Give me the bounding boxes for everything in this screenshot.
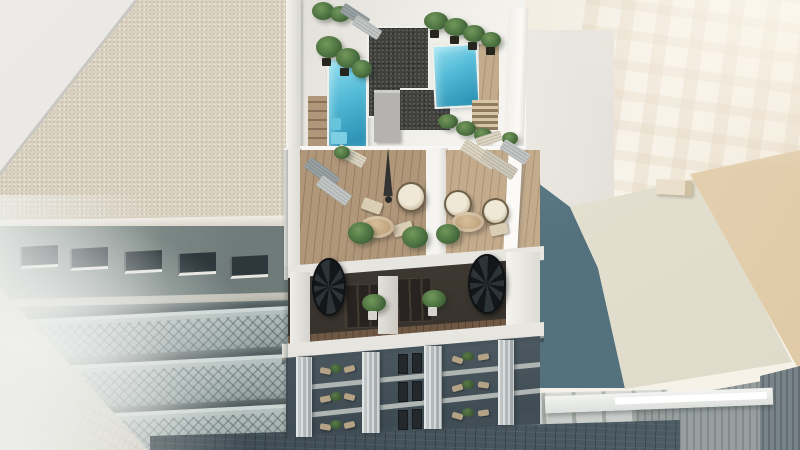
- sun-lounger: [475, 130, 503, 148]
- left-roof-edge: [0, 0, 141, 176]
- rooftop-pool-right: [431, 43, 480, 109]
- facade-pier: [362, 352, 380, 433]
- terrace-chair: [489, 222, 509, 237]
- sun-lounger: [499, 139, 531, 165]
- hanging-chair: [396, 182, 426, 212]
- sun-lounger: [351, 15, 382, 41]
- plant: [462, 380, 474, 389]
- terrace-chair: [361, 197, 384, 215]
- balcony-furniture: [343, 421, 355, 429]
- terrace-door: [343, 283, 381, 328]
- dark-window: [412, 353, 422, 373]
- plant-pot: [322, 58, 331, 66]
- sun-lounger: [460, 139, 499, 171]
- balcony-row: [0, 0, 800, 450]
- dark-window: [412, 381, 422, 401]
- rooftop-pool-left: [327, 58, 368, 148]
- balcony-furniture: [451, 355, 463, 364]
- rooftop-chimney-block: [656, 179, 693, 196]
- balcony-railing: [0, 362, 288, 413]
- plant: [348, 222, 374, 244]
- setback-pier-right: [506, 252, 540, 332]
- plant: [424, 12, 448, 30]
- skylight-strip: [615, 392, 767, 405]
- stair-bulkhead-roof: [367, 26, 430, 118]
- plant: [502, 132, 518, 145]
- plant: [336, 48, 360, 68]
- balcony-furniture: [451, 412, 463, 421]
- dark-window: [412, 409, 422, 429]
- cream-flat-roof: [0, 0, 800, 450]
- balcony-furniture: [343, 393, 355, 401]
- balcony-furniture: [320, 423, 332, 431]
- round-table: [360, 216, 394, 238]
- parasol-closed: [382, 148, 394, 196]
- sun-lounger: [335, 144, 367, 169]
- left-haze: [0, 195, 295, 450]
- round-table: [452, 212, 484, 232]
- plant: [462, 352, 474, 361]
- plant: [330, 364, 342, 373]
- balcony-furniture: [319, 395, 331, 403]
- concrete-dark-corner: [0, 0, 800, 450]
- terrace-parapet: [0, 0, 800, 450]
- rooftop-parapet-right: [503, 8, 528, 153]
- sun-lounger: [339, 3, 370, 29]
- street-corner-haze: [0, 290, 320, 450]
- setback-floor-wood: [0, 0, 800, 450]
- left-facade: [0, 226, 290, 450]
- plant: [436, 224, 460, 244]
- plant: [334, 146, 350, 159]
- facade-pier: [296, 357, 312, 437]
- plant-pot: [486, 47, 495, 55]
- plant: [463, 25, 485, 42]
- setback-pier-left: [290, 272, 310, 352]
- balcony-row-edge: [0, 0, 800, 450]
- left-window: [178, 252, 216, 276]
- left-window: [70, 247, 108, 271]
- plant: [330, 392, 342, 401]
- building-seam-shadow: [282, 150, 288, 438]
- balcony-furniture: [478, 381, 490, 388]
- dark-window: [398, 410, 408, 430]
- hanging-chair: [479, 195, 512, 228]
- plant: [402, 226, 428, 248]
- balcony-furniture: [478, 409, 490, 416]
- left-window: [230, 255, 268, 279]
- plant: [352, 60, 372, 78]
- balcony-row: [0, 0, 800, 450]
- dark-window: [398, 382, 408, 402]
- main-building: [0, 0, 800, 450]
- setback-pier-center: [378, 276, 398, 334]
- street: [0, 0, 800, 450]
- right-buildings: [0, 0, 800, 450]
- pool-step: [331, 132, 347, 144]
- plant: [444, 18, 468, 36]
- beige-roof-plane: [0, 0, 800, 450]
- spiral-staircase: [312, 258, 346, 316]
- stair-bulkhead-roof-ext: [400, 88, 452, 132]
- left-window: [124, 250, 162, 274]
- facade-pier: [424, 346, 442, 429]
- plant: [422, 290, 446, 308]
- plant-pot: [340, 68, 349, 76]
- spiral-staircase: [468, 254, 506, 314]
- right-building-ledge: [545, 388, 773, 414]
- rooftop-parapet-left: [286, 0, 301, 152]
- balcony-ledge: [0, 0, 800, 450]
- balcony-row: [0, 0, 800, 450]
- right-gray-wall: [524, 30, 614, 215]
- ledge-shadow: [0, 0, 800, 450]
- setback-terrace: [0, 0, 800, 450]
- dark-window: [398, 354, 408, 374]
- plant-pot: [368, 311, 377, 320]
- plant: [438, 114, 458, 129]
- sun-lounger: [304, 157, 341, 189]
- pavement: [0, 280, 160, 450]
- plant: [316, 36, 342, 58]
- concrete-facade: [0, 0, 800, 450]
- plant: [481, 32, 501, 48]
- sunlight-bloom: [520, 0, 800, 200]
- plant-pot: [450, 36, 459, 44]
- architectural-render: [0, 0, 800, 450]
- terrace-deck-right: [446, 150, 540, 262]
- plant: [462, 408, 474, 417]
- left-window: [20, 245, 58, 269]
- terrace-wall-left: [284, 148, 302, 272]
- plant-pot: [428, 307, 437, 316]
- balcony-furniture: [478, 353, 490, 361]
- terrace-divider-wall: [426, 148, 448, 266]
- left-building: [0, 0, 800, 450]
- terrace-wall-right: [503, 150, 522, 251]
- terrace-deck-left: [300, 150, 428, 270]
- sun-lounger: [316, 175, 353, 207]
- plant: [330, 420, 342, 429]
- pool-deck-right: [479, 44, 499, 114]
- right-bright-facade: [520, 0, 800, 250]
- right-facade-window-grid: [561, 0, 800, 216]
- left-roof-smooth: [0, 0, 300, 230]
- plant: [456, 121, 476, 136]
- left-string-course: [0, 292, 288, 308]
- rooftop-deck: [286, 0, 526, 152]
- bulkhead-lower-roof: [374, 90, 400, 142]
- balcony-railing: [0, 314, 288, 361]
- left-roof-gravel: [0, 0, 288, 222]
- terrace-chair: [392, 220, 415, 238]
- plant: [474, 128, 492, 142]
- plant: [312, 2, 334, 20]
- balcony-furniture: [319, 367, 331, 375]
- left-balcony-row: [0, 354, 288, 413]
- hanging-chair: [444, 190, 472, 218]
- pool-steps-left: [308, 96, 327, 148]
- lower-facade: [0, 0, 800, 450]
- terrace-rim: [300, 146, 526, 152]
- plant-pot: [430, 30, 439, 38]
- plant-pot: [468, 42, 477, 50]
- left-roof-cornice: [0, 215, 288, 230]
- sun-lounger: [480, 149, 519, 181]
- balcony-row-edge: [0, 0, 800, 450]
- balcony-furniture: [451, 384, 463, 393]
- pool-steps-right: [472, 100, 498, 130]
- terrace-door: [395, 277, 433, 322]
- pool-step: [331, 118, 341, 130]
- plant: [330, 6, 350, 22]
- facade-pier: [498, 340, 514, 425]
- balcony-furniture: [343, 365, 355, 374]
- left-balcony-row: [0, 306, 288, 361]
- parasol-base: [385, 196, 392, 203]
- plant: [362, 294, 386, 312]
- teal-flat-roof: [0, 0, 800, 450]
